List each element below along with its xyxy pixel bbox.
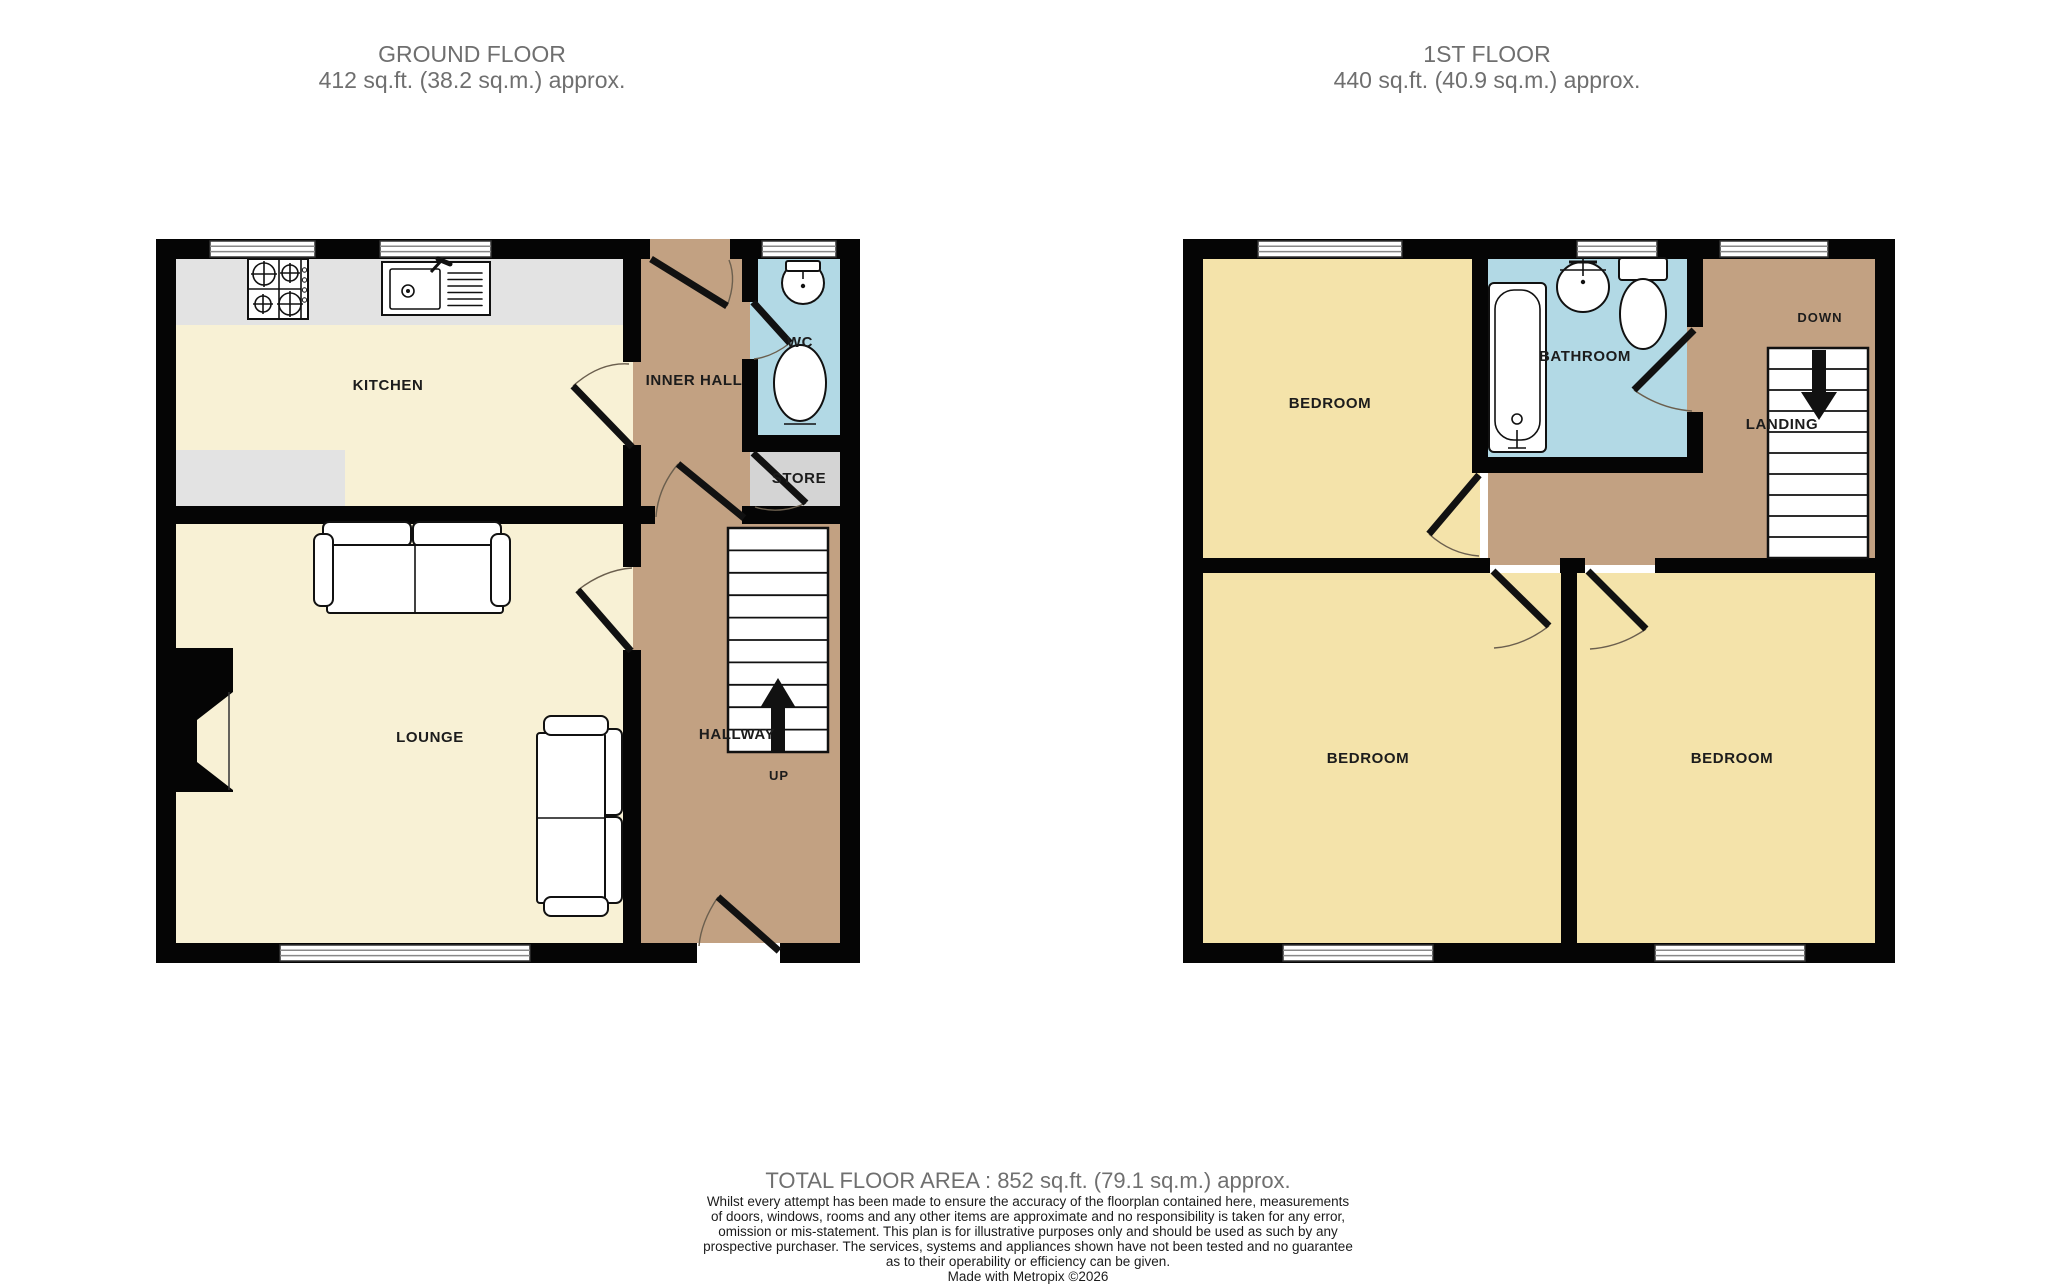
down-arrow-icon [1812,350,1826,396]
disclaimer: Whilst every attempt has been made to en… [703,1194,1353,1284]
first-floor-title: 1ST FLOOR [1423,41,1550,67]
wall [742,435,840,452]
sofa [314,522,510,613]
floorplan-page: GROUND FLOOR 412 sq.ft. (38.2 sq.m.) app… [0,0,2048,1284]
ground-floor-plan: KITCHEN INNER HALL WC STORE LOUNGE HALLW… [156,239,860,963]
wall [1560,558,1585,573]
wall [176,506,655,524]
wall [742,259,758,302]
window [1655,945,1805,961]
wall [742,359,758,443]
wall [623,650,641,943]
kitchen-unit [176,450,345,506]
wc-basin-icon [782,261,824,304]
up-label: UP [769,768,789,783]
kitchen-label: KITCHEN [353,377,424,394]
landing-label: LANDING [1746,416,1819,433]
bedroom-top-left-label: BEDROOM [1289,395,1372,412]
wall [1203,558,1490,573]
store-label: STORE [772,470,826,487]
stairs-up [728,528,828,752]
window [210,241,315,257]
stairs-down [1768,348,1868,558]
first-floor-plan: BEDROOM BATHROOM DOWN LANDING BEDROOM BE… [1183,239,1895,963]
disclaimer-line: prospective purchaser. The services, sys… [703,1239,1353,1254]
wall [1183,239,1203,963]
wall [1687,412,1703,473]
sofa [537,716,622,916]
wall [1561,573,1577,943]
inner-hall-label: INNER HALL [646,372,743,389]
disclaimer-line: omission or mis-statement. This plan is … [718,1224,1338,1239]
window [1258,241,1402,257]
wall [156,239,176,963]
bath-icon [1489,283,1546,452]
window [1720,241,1828,257]
down-label: DOWN [1797,310,1842,325]
hallway-label: HALLWAY [699,726,775,743]
disclaimer-line: of doors, windows, rooms and any other i… [711,1209,1345,1224]
wc-label: WC [787,334,813,351]
chimney-breast [176,648,233,792]
window [1577,241,1657,257]
wall [623,524,641,567]
hob-icon [248,259,308,319]
bathroom-label: BATHROOM [1539,348,1631,365]
window [280,945,530,961]
disclaimer-line: as to their operability or efficiency ca… [886,1254,1170,1269]
wall [623,259,641,362]
credit-line: Made with Metropix ©2026 [948,1269,1109,1284]
wall [1687,259,1703,327]
bedroom-bottom-right-label: BEDROOM [1691,750,1774,767]
window [762,241,836,257]
window [380,241,491,257]
ground-floor-title: GROUND FLOOR [378,41,566,67]
wall [1655,558,1875,573]
first-floor-area: 440 sq.ft. (40.9 sq.m.) approx. [1334,67,1641,93]
wall [623,445,641,506]
floorplan-drawing: GROUND FLOOR 412 sq.ft. (38.2 sq.m.) app… [0,0,2048,1284]
toilet-icon [1619,258,1667,349]
sink-icon [382,259,490,315]
window [1283,945,1433,961]
wall [1875,239,1895,963]
wall [1472,259,1488,473]
landing-corridor [1488,464,1687,565]
wall [1472,457,1687,473]
disclaimer-line: Whilst every attempt has been made to en… [707,1194,1350,1209]
back-door-opening [650,239,730,259]
ground-floor-area: 412 sq.ft. (38.2 sq.m.) approx. [319,67,626,93]
front-door-opening [697,943,780,963]
wall [840,239,860,963]
bedroom-bottom-left-label: BEDROOM [1327,750,1410,767]
lounge-label: LOUNGE [396,729,464,746]
total-floor-area: TOTAL FLOOR AREA : 852 sq.ft. (79.1 sq.m… [765,1168,1290,1193]
